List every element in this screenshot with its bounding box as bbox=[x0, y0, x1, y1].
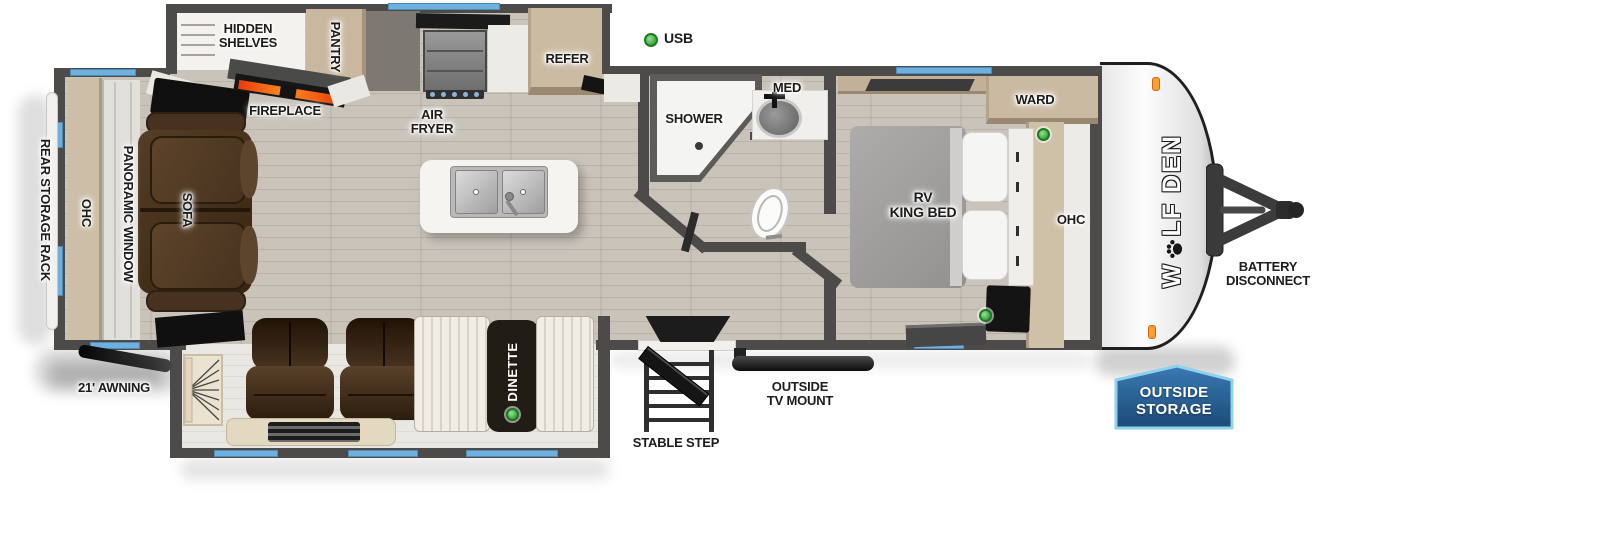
window-bedroom-top bbox=[896, 67, 992, 74]
brand-logo: W LF DEN bbox=[1157, 111, 1187, 311]
label-air-fryer: AIR FRYER bbox=[402, 108, 462, 136]
wall-bottom-slide-right bbox=[598, 316, 610, 450]
bath-sink bbox=[756, 98, 802, 138]
sofa-seam bbox=[140, 208, 250, 212]
window-bottom-slide-2 bbox=[348, 450, 418, 457]
label-bedroom-ohc: OHC bbox=[1045, 213, 1097, 227]
headboard-cabinet bbox=[1008, 128, 1034, 286]
shower-drain bbox=[695, 142, 703, 150]
label-fireplace: FIREPLACE bbox=[240, 104, 330, 118]
pillow-2 bbox=[962, 210, 1008, 280]
label-pantry: PANTRY bbox=[327, 12, 343, 82]
nightstand bbox=[985, 285, 1031, 333]
seat-base-mat bbox=[268, 422, 360, 442]
wall-bedroom-lower bbox=[824, 278, 836, 350]
window-rear-top bbox=[70, 69, 136, 76]
label-dinette: DINETTE bbox=[505, 332, 521, 412]
label-hidden-shelves: HIDDEN SHELVES bbox=[206, 22, 290, 50]
wall-bottom-slide-left bbox=[170, 340, 182, 458]
label-ward: WARD bbox=[1003, 93, 1067, 107]
outside-storage-badge: OUTSIDE STORAGE bbox=[1112, 362, 1236, 432]
headboard-handle-4 bbox=[1016, 256, 1019, 266]
seat1-cushion-seam bbox=[254, 394, 326, 396]
panoramic-window-line-1 bbox=[114, 82, 116, 338]
burner-dot-4 bbox=[463, 92, 468, 97]
headboard-handle-3 bbox=[1016, 226, 1019, 236]
theater-seat-1 bbox=[246, 316, 334, 416]
usb-legend-label: USB bbox=[664, 31, 708, 46]
label-rear-storage-rack: REAR STORAGE RACK bbox=[37, 110, 53, 310]
dinette-bench-right bbox=[536, 316, 594, 432]
corner-fan-cabinet bbox=[183, 354, 223, 426]
window-bottom-slide-1 bbox=[214, 450, 278, 457]
label-awning: 21' AWNING bbox=[62, 381, 166, 395]
pillow-1 bbox=[962, 132, 1008, 202]
window-bottom-slide-3 bbox=[466, 450, 558, 457]
bed-foot-bench bbox=[906, 323, 987, 348]
label-rear-ohc: OHC bbox=[78, 188, 94, 238]
wall-bath-bottom bbox=[700, 242, 806, 252]
paw-icon bbox=[1162, 239, 1182, 259]
usb-dot-wardrobe bbox=[1037, 128, 1050, 141]
burner-dot-3 bbox=[452, 92, 457, 97]
hitch-assembly bbox=[1206, 158, 1306, 262]
label-sofa: SOFA bbox=[179, 180, 195, 240]
dinette-bench-left bbox=[414, 316, 490, 432]
burner-dot-5 bbox=[474, 92, 479, 97]
seat2-cushion-seam bbox=[348, 394, 420, 396]
sofa-front-bolster-1 bbox=[240, 140, 258, 198]
label-battery-disconnect: BATTERY DISCONNECT bbox=[1206, 260, 1330, 288]
step-rung-4 bbox=[644, 404, 714, 408]
brand-logo-prefix: W bbox=[1158, 262, 1187, 288]
wall-kitchen-slide-left bbox=[166, 4, 177, 74]
range-shelf-line-1 bbox=[427, 50, 483, 52]
label-med: MED bbox=[757, 81, 817, 95]
clearance-light-bottom-icon bbox=[1148, 325, 1156, 339]
kitchen-counter-mid bbox=[366, 11, 420, 91]
seat2-back-seam bbox=[383, 322, 385, 366]
kitchen-counter-right bbox=[488, 25, 530, 92]
label-rv-king-bed: RV KING BED bbox=[883, 190, 963, 220]
burner-dot-1 bbox=[430, 92, 435, 97]
burner-dot-2 bbox=[441, 92, 446, 97]
floorplan-canvas: W LF DEN BATTERY DISCONNECT bbox=[0, 0, 1600, 546]
headboard-handle-2 bbox=[1016, 182, 1019, 192]
toilet-handle bbox=[766, 234, 782, 240]
range-shelf-line-2 bbox=[427, 70, 483, 72]
shadow-slide-bottom bbox=[180, 458, 610, 480]
sink-drain-right bbox=[520, 189, 526, 195]
air-fryer-range bbox=[423, 30, 487, 92]
sink-drain-left bbox=[473, 189, 479, 195]
label-outside-tv-mount: OUTSIDE TV MOUNT bbox=[752, 380, 848, 408]
window-kitchen-slide bbox=[388, 3, 500, 10]
seat1-back-seam bbox=[289, 322, 291, 366]
headboard-handle-1 bbox=[1016, 152, 1019, 162]
usb-legend-dot bbox=[644, 33, 658, 47]
label-stable-step: STABLE STEP bbox=[622, 436, 730, 450]
outside-storage-label: OUTSIDE STORAGE bbox=[1116, 384, 1232, 419]
label-refer: REFER bbox=[535, 52, 599, 66]
step-rung-5 bbox=[644, 418, 714, 422]
sofa-cushion-top bbox=[150, 136, 246, 204]
counter-to-bath bbox=[604, 74, 640, 102]
label-shower: SHOWER bbox=[654, 112, 734, 126]
sofa-arm-bottom bbox=[146, 290, 246, 312]
usb-dot-nightstand bbox=[979, 309, 992, 322]
seat1-cushion bbox=[246, 366, 334, 420]
bed-overhead-inset bbox=[865, 79, 975, 91]
clearance-light-top-icon bbox=[1152, 77, 1160, 91]
sofa-cushion-bottom bbox=[150, 222, 246, 290]
sofa-front-bolster-2 bbox=[240, 226, 258, 284]
brand-logo-suffix: LF DEN bbox=[1158, 134, 1187, 236]
tv-mount-bar bbox=[732, 356, 874, 371]
hidden-shelf-line-4 bbox=[181, 54, 215, 56]
label-panoramic-window: PANORAMIC WINDOW bbox=[120, 129, 136, 299]
fireplace-flame-divider bbox=[279, 85, 297, 99]
wall-bedroom-upper bbox=[824, 66, 836, 214]
